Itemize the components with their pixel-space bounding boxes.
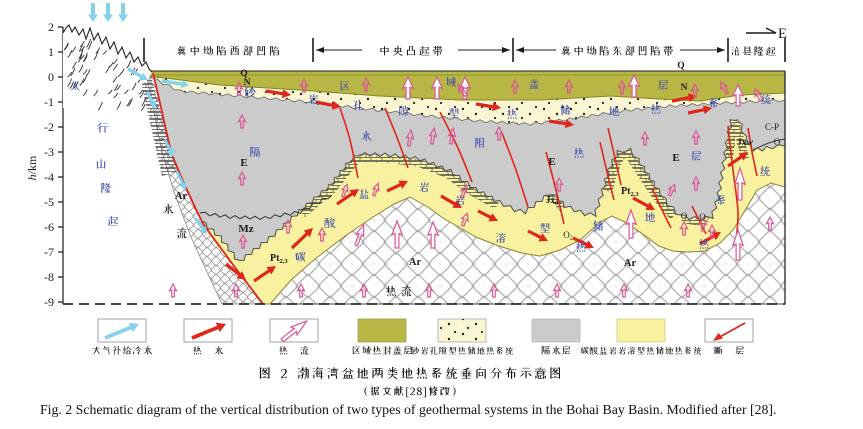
svg-text:-2: -2 [44,120,54,134]
svg-text:2: 2 [48,20,54,34]
svg-text:h/km: h/km [25,155,39,180]
svg-text:Ar: Ar [624,258,637,269]
svg-text:0: 0 [48,70,54,84]
svg-text:-8: -8 [44,270,54,284]
svg-text:Jxw: Jxw [737,138,754,148]
svg-text:O: O [681,211,688,221]
svg-text:E: E [240,157,247,169]
svg-text:-9: -9 [44,295,54,309]
svg-text:Mz: Mz [238,223,253,235]
svg-text:-3: -3 [44,145,54,159]
svg-text:C-P: C-P [765,122,779,132]
svg-text:O: O [774,137,781,147]
svg-text:E: E [548,156,555,168]
svg-text:Q: Q [677,61,684,71]
svg-text:Ar: Ar [175,191,188,202]
svg-text:-5: -5 [44,195,54,209]
svg-text:Fig. 2 Schematic diagram of: Fig. 2 Schematic diagram of the vertical… [40,402,776,417]
svg-text:-6: -6 [44,220,54,234]
svg-text:-4: -4 [44,170,54,184]
svg-text:E: E [778,26,787,42]
svg-text:1: 1 [48,45,54,59]
svg-text:E: E [672,152,679,164]
svg-text:Ar: Ar [409,257,422,268]
svg-text:-7: -7 [44,245,54,259]
svg-text:-1: -1 [44,95,54,109]
svg-text:N: N [244,78,251,88]
svg-text:N: N [681,83,688,93]
